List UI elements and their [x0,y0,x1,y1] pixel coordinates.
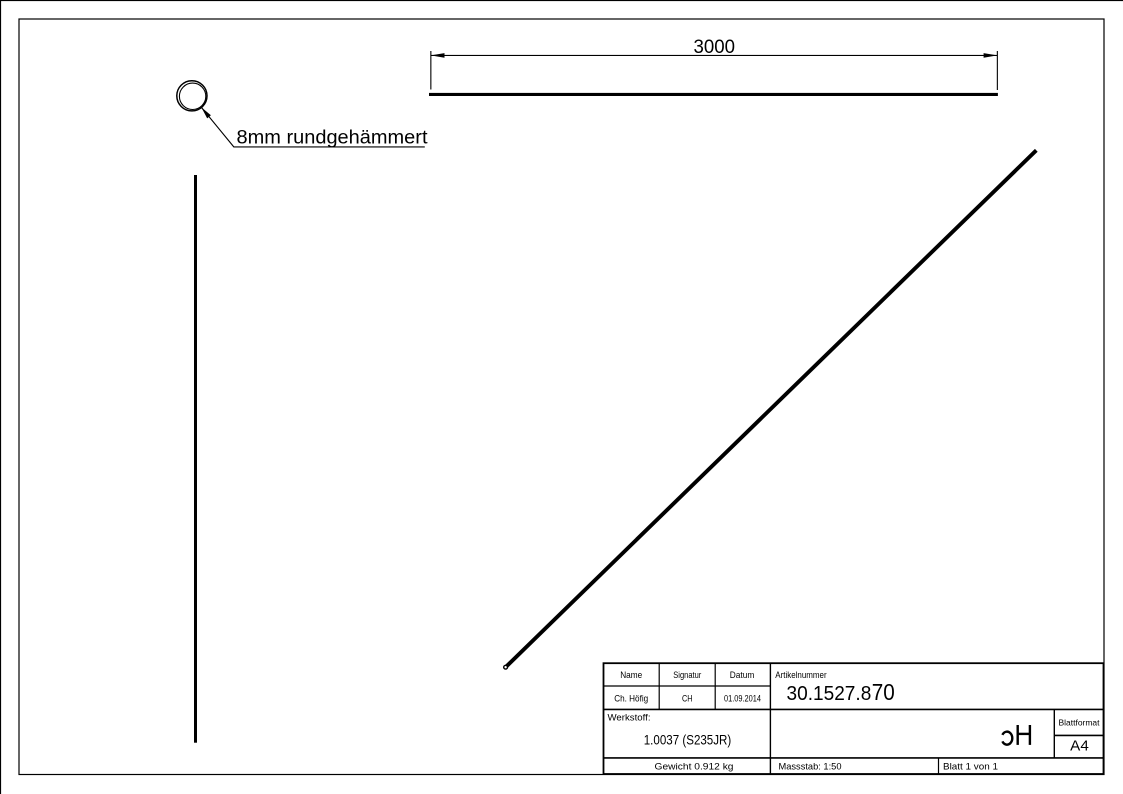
svg-text:01.09.2014: 01.09.2014 [724,693,761,703]
svg-text:Werkstoff:: Werkstoff: [608,712,651,722]
svg-text:A4: A4 [1070,738,1089,755]
svg-text:70: 70 [872,679,895,705]
svg-text:Datum: Datum [730,670,755,680]
svg-text:30.1527.8: 30.1527.8 [787,682,872,705]
svg-text:8mm rundgehämmert: 8mm rundgehämmert [237,128,429,149]
svg-text:Name: Name [620,670,642,680]
svg-text:Gewicht 0.912 kg: Gewicht 0.912 kg [655,762,734,773]
svg-text:1.0037 (S235JR): 1.0037 (S235JR) [644,732,732,748]
svg-text:Artikelnummer: Artikelnummer [775,670,826,680]
svg-text:Blattformat: Blattformat [1059,717,1101,727]
svg-text:Ch. Höfig: Ch. Höfig [614,693,648,703]
svg-text:CH: CH [682,693,693,703]
svg-text:Signatur: Signatur [673,670,701,680]
svg-text:Massstab: 1:50: Massstab: 1:50 [779,762,842,773]
svg-text:Blatt 1 von 1: Blatt 1 von 1 [943,762,998,773]
svg-text:3000: 3000 [694,36,736,58]
